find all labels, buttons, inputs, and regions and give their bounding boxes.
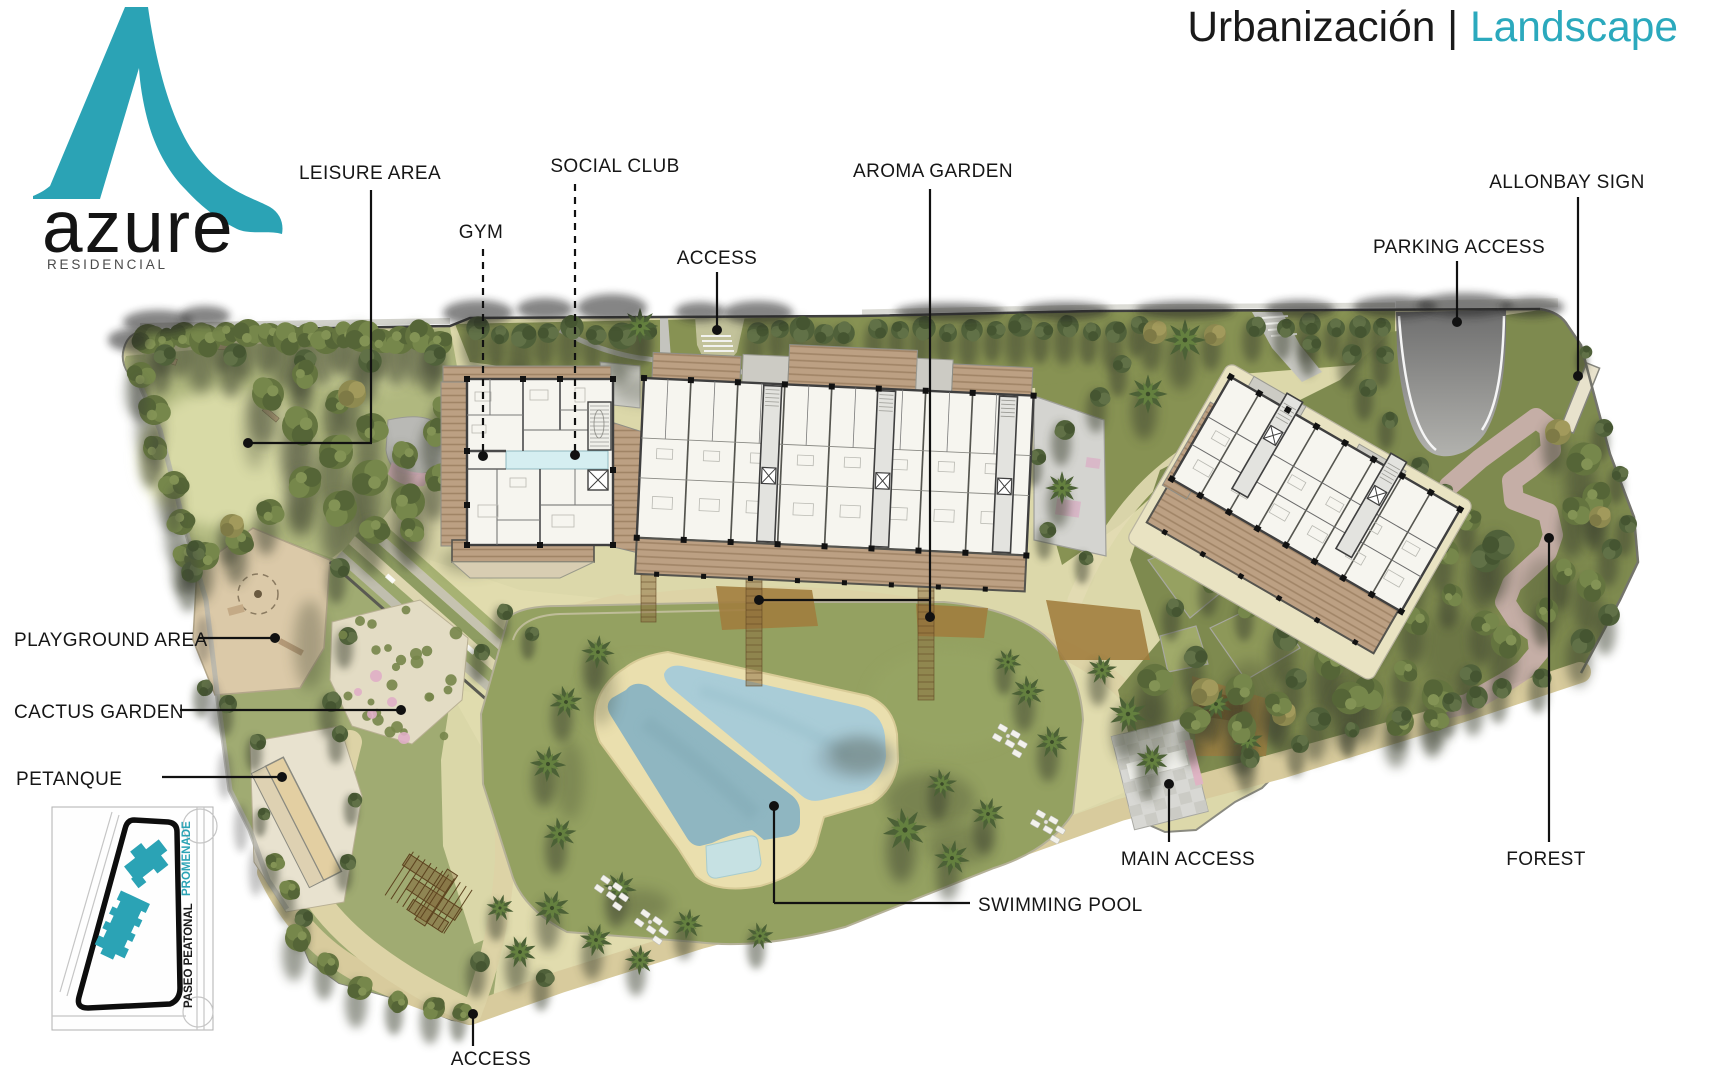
svg-text:MAIN ACCESS: MAIN ACCESS	[1121, 849, 1255, 870]
svg-text:PETANQUE: PETANQUE	[16, 769, 122, 790]
svg-text:azure: azure	[42, 187, 235, 268]
svg-text:SWIMMING POOL: SWIMMING POOL	[978, 895, 1143, 916]
svg-text:PASEO PEATONAL: PASEO PEATONAL	[183, 903, 195, 1008]
svg-text:PARKING ACCESS: PARKING ACCESS	[1373, 237, 1545, 258]
svg-text:GYM: GYM	[459, 222, 503, 243]
svg-text:CACTUS GARDEN: CACTUS GARDEN	[14, 702, 184, 723]
svg-text:LEISURE AREA: LEISURE AREA	[299, 163, 441, 184]
svg-text:PLAYGROUND AREA: PLAYGROUND AREA	[14, 630, 208, 651]
svg-text:AROMA GARDEN: AROMA GARDEN	[853, 161, 1013, 182]
svg-text:RESIDENCIAL: RESIDENCIAL	[47, 257, 168, 272]
svg-text:Urbanización | Landscape: Urbanización | Landscape	[1187, 4, 1678, 51]
svg-text:ALLONBAY SIGN: ALLONBAY SIGN	[1489, 172, 1645, 193]
svg-text:SOCIAL CLUB: SOCIAL CLUB	[550, 156, 679, 177]
svg-text:FOREST: FOREST	[1506, 849, 1585, 870]
svg-text:ACCESS: ACCESS	[677, 248, 758, 269]
svg-text:ACCESS: ACCESS	[451, 1049, 532, 1070]
svg-text:PROMENADE: PROMENADE	[181, 821, 193, 896]
